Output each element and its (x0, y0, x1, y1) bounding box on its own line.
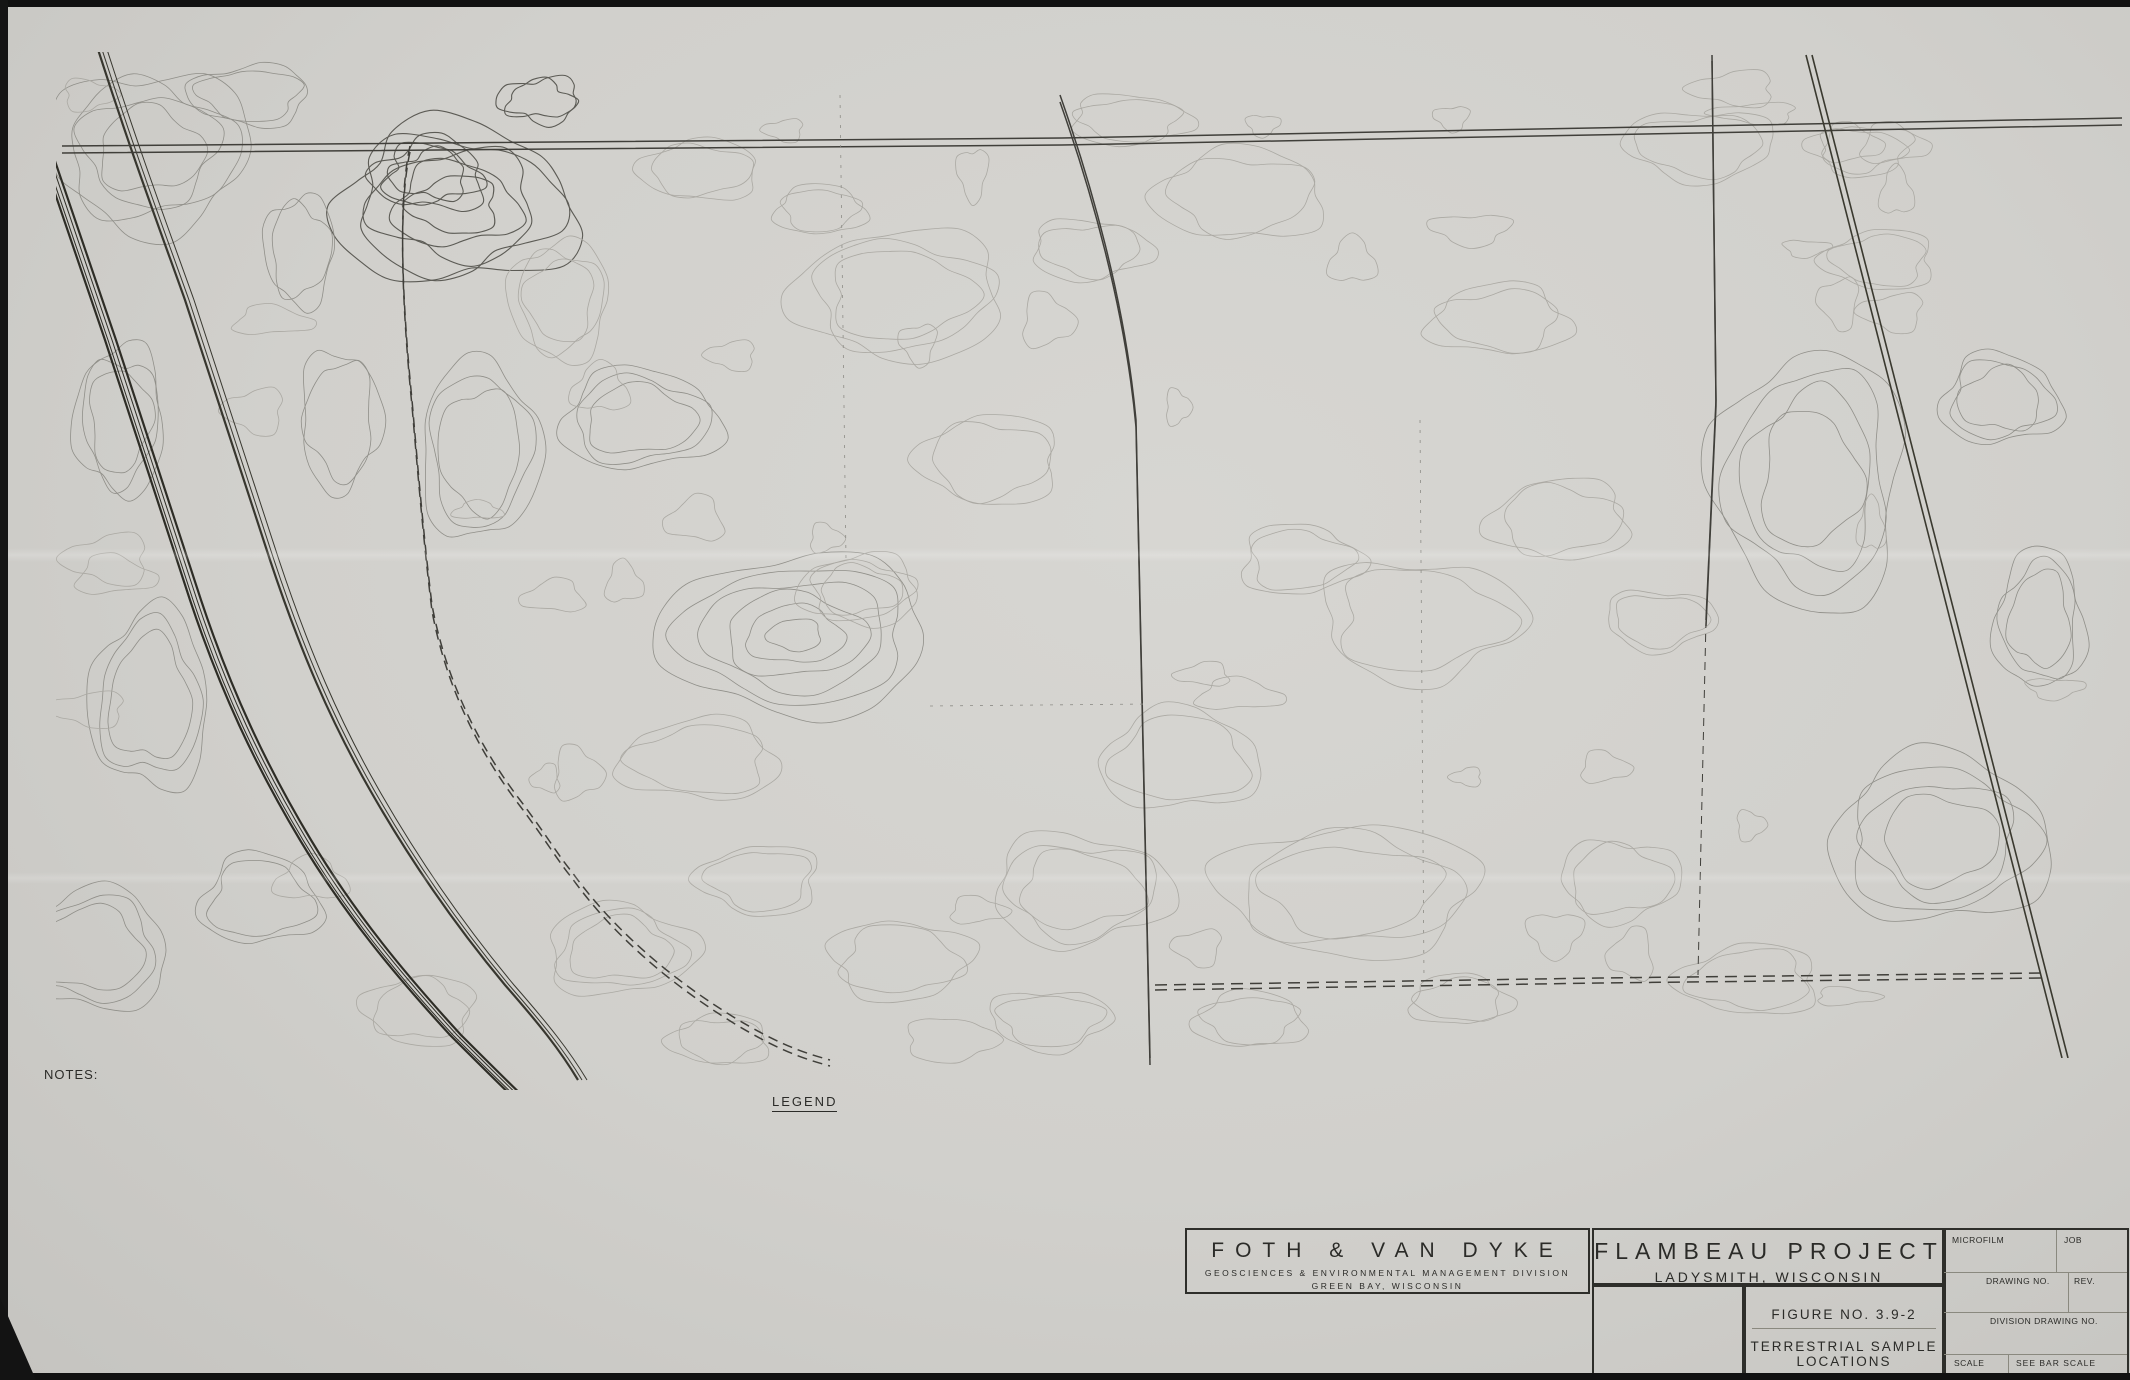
river-bank (37, 120, 525, 1102)
contour-line (1505, 482, 1624, 556)
contour-line (365, 132, 483, 211)
scan-edge-bottom (0, 1373, 2130, 1380)
contour-line (679, 1021, 764, 1065)
contour-line (1854, 292, 1923, 333)
contour-line (1479, 478, 1632, 560)
contour-line (995, 831, 1179, 952)
contour-line (327, 110, 583, 282)
contour-line (1251, 529, 1359, 590)
figure-title: TERRESTRIAL SAMPLE LOCATIONS (1744, 1339, 1944, 1369)
contour-line (363, 146, 532, 266)
contour-line (1616, 596, 1711, 649)
contour-line (1023, 291, 1079, 349)
contour-line (838, 925, 968, 993)
railroad-layer (1806, 55, 2068, 1058)
contour-line (1205, 825, 1485, 961)
contour-line (908, 414, 1055, 504)
contour-line (1020, 849, 1149, 930)
company-block (1592, 1283, 1746, 1376)
contour-line (1827, 234, 1926, 286)
contour-line (1256, 847, 1447, 939)
sth-27-road (1060, 95, 1150, 1058)
rev-label: REV. (2074, 1276, 2095, 1286)
contour-line (521, 259, 594, 342)
contour-line (995, 996, 1107, 1046)
contour-line (6, 881, 166, 1011)
railroad-track (1806, 55, 2062, 1058)
contour-line (1249, 827, 1468, 943)
contour-line (231, 303, 316, 334)
contour-line (2025, 679, 2087, 701)
contour-line (1145, 143, 1324, 236)
kennecott-drive (403, 152, 830, 1066)
section-line (930, 704, 1150, 706)
contour-line (1434, 289, 1558, 354)
contour-line (1421, 281, 1577, 354)
kennecott-drive (403, 146, 830, 1060)
contour-line (496, 75, 576, 127)
contour-line (16, 895, 155, 1004)
contour-line (505, 236, 608, 365)
contour-line (108, 629, 193, 758)
section-line (1420, 420, 1424, 980)
contour-line (1072, 94, 1199, 147)
contour-line (781, 228, 1001, 364)
doughty-blackberry-road (62, 118, 2122, 146)
drawing-no-label: DRAWING NO. (1986, 1276, 2050, 1286)
contour-line (425, 351, 546, 537)
contour-line (1171, 661, 1230, 686)
contour-line (272, 199, 332, 300)
contour-line (102, 102, 208, 191)
legend-title: LEGEND (772, 1094, 837, 1112)
contour-line (1818, 987, 1885, 1006)
contour-line (301, 360, 371, 484)
contour-line (812, 238, 1000, 352)
contour-line (765, 619, 821, 652)
sth-27-road (1060, 102, 1150, 1065)
topographic-map (0, 0, 2130, 1380)
contour-line (702, 853, 812, 912)
contour-line (1782, 240, 1833, 258)
contour-line (381, 142, 487, 205)
contour-line (1105, 715, 1252, 800)
firm-name: FOTH & VAN DYKE (1187, 1239, 1588, 1263)
contour-line (810, 522, 845, 553)
contour-line (1198, 998, 1301, 1045)
contour-line (570, 914, 674, 978)
contour-line (1165, 158, 1314, 239)
contour-line (192, 71, 304, 121)
contour-line (206, 860, 317, 936)
river-bank (30, 120, 518, 1102)
contour-line (1701, 350, 1905, 613)
section-line (840, 95, 846, 560)
contour-line (1447, 767, 1480, 787)
contour-line (569, 359, 631, 410)
contour-line (185, 62, 308, 128)
contour-line (303, 350, 385, 498)
contour-line (1802, 127, 1915, 178)
scale-label: SCALE (1954, 1358, 1984, 1368)
contour-line (32, 903, 146, 990)
contour-line (1957, 364, 2039, 431)
contour-line (1169, 929, 1221, 968)
notes-block: NOTES: (44, 1068, 564, 1090)
contour-line (2006, 569, 2071, 669)
contour-line (1739, 381, 1870, 572)
contour-line (1241, 524, 1371, 594)
contour-line (1327, 233, 1379, 281)
contour-line (557, 365, 729, 470)
river-bank (41, 120, 529, 1102)
contour-line (698, 582, 882, 696)
hansen-road (1155, 978, 2042, 990)
contour-line (56, 532, 144, 586)
contour-line (810, 559, 918, 620)
railroad-track (1812, 55, 2068, 1058)
scale-value: SEE BAR SCALE (2016, 1358, 2096, 1368)
contour-line (1574, 841, 1675, 914)
division-drawing-no-label: DIVISION DRAWING NO. (1990, 1316, 2098, 1326)
contour-line (1561, 840, 1682, 927)
contour-line (429, 376, 536, 527)
contour-line (1193, 676, 1286, 709)
contour-line (604, 558, 644, 602)
contour-line (1581, 750, 1634, 784)
contour-line (1884, 794, 1999, 889)
project-name: FLAMBEAU PROJECT (1594, 1238, 1944, 1265)
contour-line (1814, 229, 1931, 289)
meadowbrook-lane-ext (1698, 620, 1706, 975)
contour-line (74, 98, 224, 210)
road-layer (62, 55, 2122, 1066)
contour-line (835, 251, 984, 339)
contour-line (590, 382, 700, 453)
contour-line (760, 118, 803, 142)
contour-line (1432, 107, 1470, 134)
contour-line (1682, 70, 1771, 108)
contour-line (702, 340, 755, 372)
firm-location: GREEN BAY, WISCONSIN (1187, 1281, 1588, 1291)
contour-line (1857, 787, 2014, 904)
contour-line (1003, 845, 1157, 944)
contour-line (825, 921, 980, 1003)
river-bank (99, 40, 582, 1080)
contour-line (730, 589, 871, 676)
contour-line (387, 146, 463, 202)
microfilm-label: MICROFILM (1952, 1235, 2004, 1245)
contour-line (82, 359, 158, 493)
contour-line (688, 846, 816, 916)
contour-line (529, 763, 560, 793)
scan-edge-left (0, 0, 8, 1380)
contour-line (554, 744, 606, 801)
contour-line (633, 137, 756, 200)
contour-line (1761, 411, 1867, 546)
contour-line (1039, 225, 1141, 280)
contour-line (195, 850, 326, 944)
contour-line (1860, 121, 1933, 163)
contour-line (72, 74, 243, 221)
contour-line (505, 77, 579, 117)
contour-line (1098, 702, 1261, 808)
contour-line (950, 895, 1012, 924)
figure-block: FIGURE NO. 3.9-2 TERRESTRIAL SAMPLE LOCA… (1742, 1283, 1946, 1376)
contour-line (1719, 368, 1886, 595)
firm-title-block: FOTH & VAN DYKE GEOSCIENCES & ENVIRONMEN… (1185, 1228, 1590, 1294)
contour-line (1737, 809, 1768, 841)
river-layer (30, 40, 587, 1102)
river-bank (33, 120, 521, 1102)
contour-line (956, 150, 989, 206)
notes-title: NOTES: (44, 1068, 564, 1082)
scan-edge-top (0, 0, 2130, 7)
firm-division: GEOSCIENCES & ENVIRONMENTAL MANAGEMENT D… (1187, 1268, 1588, 1278)
job-label: JOB (2064, 1235, 2082, 1245)
contour-line (1605, 926, 1653, 982)
contour-line (661, 1013, 768, 1063)
contour-line (653, 552, 924, 723)
contour-line (1609, 590, 1719, 655)
contour-line (1525, 915, 1585, 962)
project-title-block: FLAMBEAU PROJECT LADYSMITH, WISCONSIN (1592, 1228, 1946, 1287)
contour-line (662, 493, 725, 541)
contour-line (1816, 277, 1859, 332)
contour-line (271, 853, 350, 898)
contour-line (1990, 546, 2089, 686)
contour-line (780, 190, 863, 232)
contour-line (666, 570, 898, 705)
contour-line (1189, 988, 1309, 1046)
contour-line (1167, 388, 1194, 427)
stamp-column: MICROFILM JOB DRAWING NO. REV. DIVISION … (1942, 1228, 2129, 1376)
contour-line (908, 1019, 1003, 1064)
contour-line (771, 184, 870, 234)
drawing-sheet: NOTES: LEGEND FOTH & VAN DYKE GEOSCIENCE… (0, 0, 2130, 1380)
contour-line (1341, 569, 1522, 671)
meadowbrook-lane (1706, 61, 1716, 626)
contour-line (577, 373, 712, 464)
contour-line (1412, 977, 1499, 1021)
contour-layer (6, 62, 2089, 1064)
contour-line (519, 577, 587, 612)
doughty-blackberry-road (62, 125, 2122, 153)
figure-number: FIGURE NO. 3.9-2 (1744, 1307, 1944, 1322)
contour-line (1878, 163, 1915, 213)
contour-line (1427, 215, 1514, 248)
